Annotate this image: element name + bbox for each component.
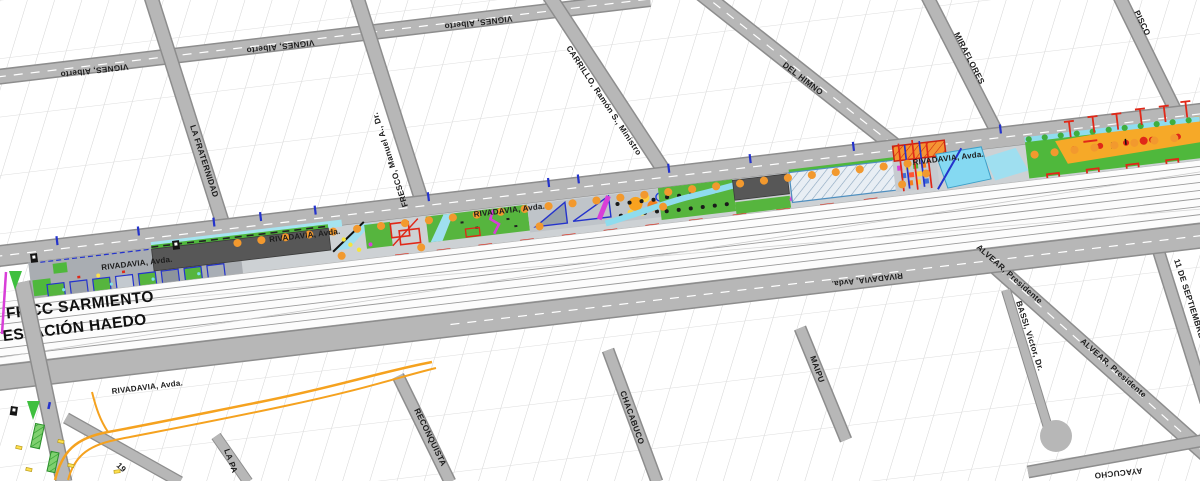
site-plan-canvas: FF CC SARMIENTO ESTACIÓN HAEDO RIVADAVIA… [0,0,1200,481]
junction-area [1040,420,1072,452]
urban-plan-map: FF CC SARMIENTO ESTACIÓN HAEDO RIVADAVIA… [0,0,1200,481]
